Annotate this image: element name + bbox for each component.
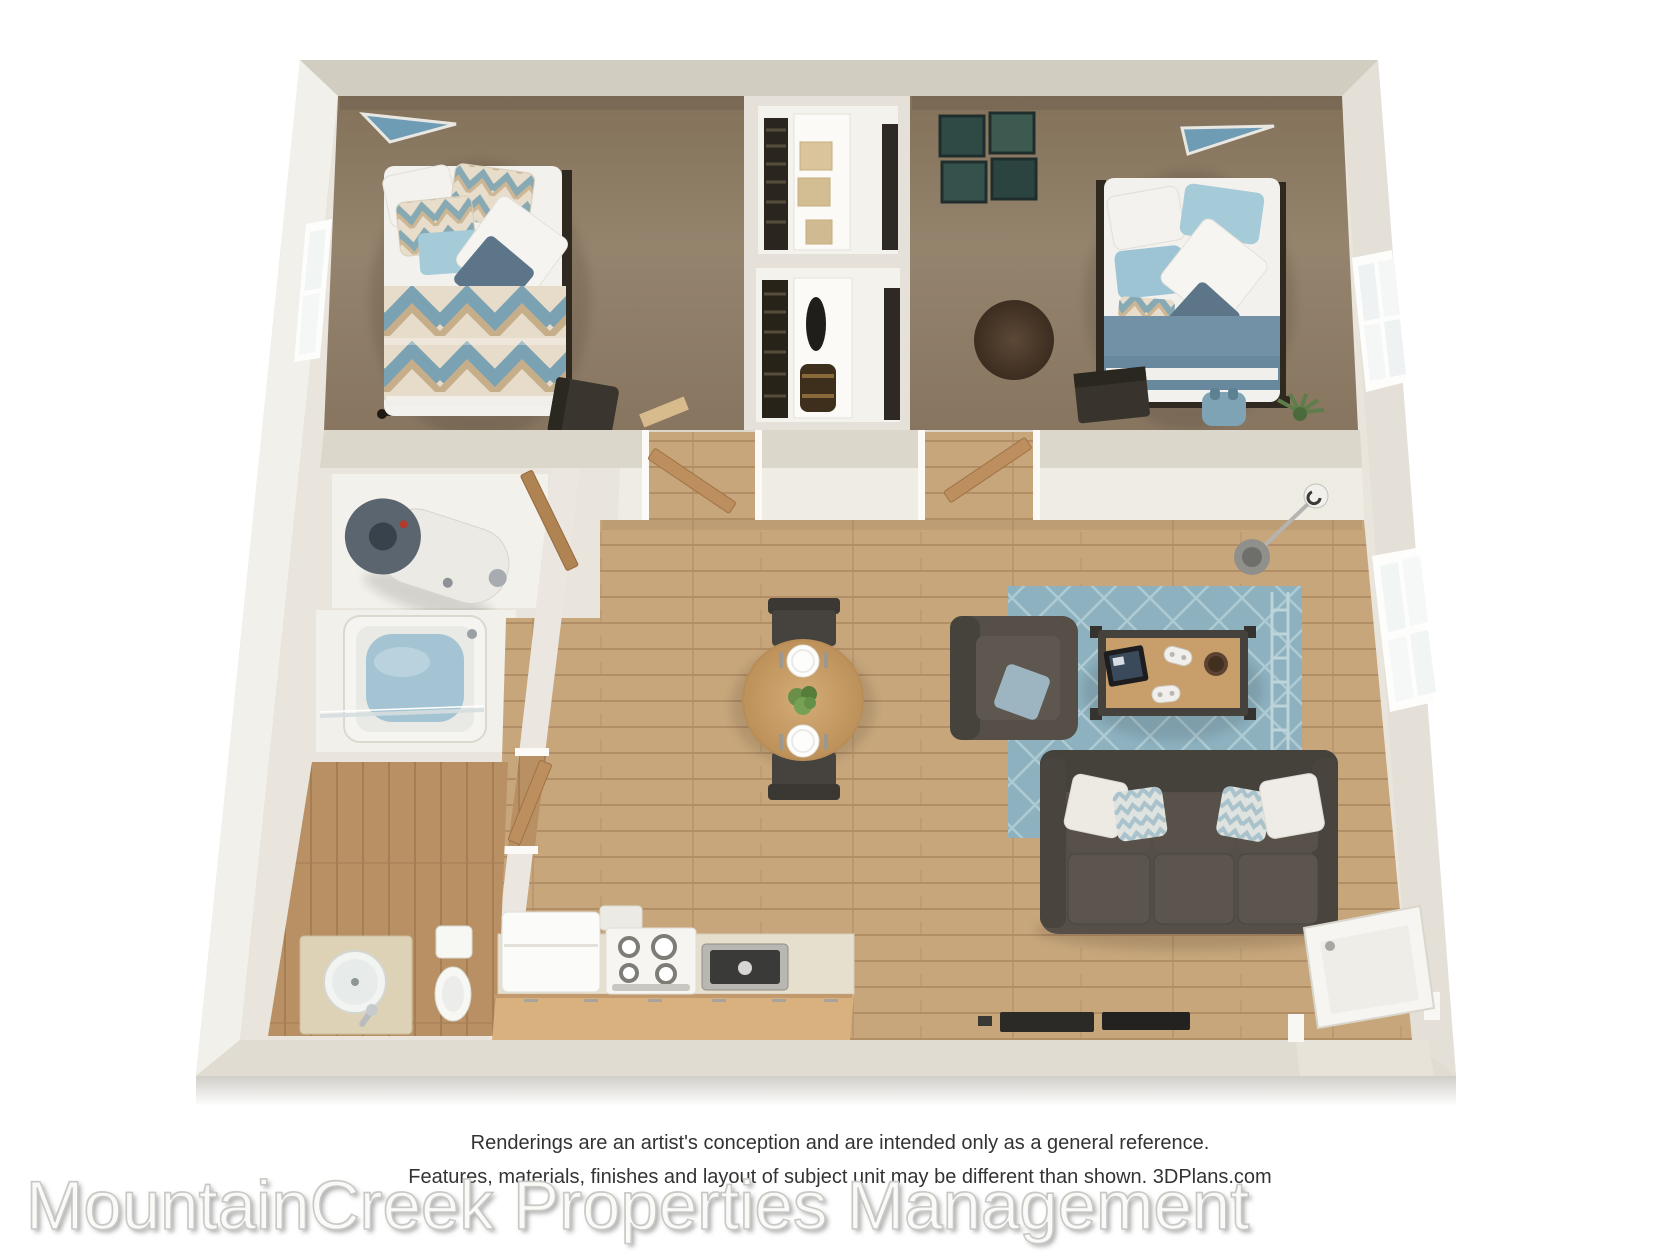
closet-bottom <box>756 268 900 422</box>
bedroom-right-doorway <box>918 430 1040 522</box>
armchair <box>950 616 1078 740</box>
hall-closets <box>744 96 910 430</box>
bedroom-left-doorway <box>642 430 762 522</box>
bedroom-left <box>294 96 744 443</box>
door-handle <box>1325 941 1335 951</box>
coffee-table <box>1083 626 1263 740</box>
vanity <box>300 936 412 1034</box>
bathtub-room <box>316 610 516 752</box>
tub-faucet <box>467 629 477 639</box>
watermark: MountainCreek Properties Management <box>26 1166 1249 1245</box>
tablet <box>1103 645 1149 687</box>
stove <box>606 928 696 994</box>
floor-shadow <box>196 1076 1456 1106</box>
closet-bag <box>800 364 836 412</box>
bedroom-right <box>910 96 1406 430</box>
kitchen-cabinets <box>492 994 854 1040</box>
bedroom-right-desk-chair <box>1073 366 1150 423</box>
disclaimer-line-1: Renderings are an artist's conception an… <box>0 1126 1680 1160</box>
backpack <box>1202 388 1246 426</box>
kitchen-sink <box>702 944 788 990</box>
floorplan-3d-rendering <box>0 0 1680 1260</box>
refrigerator <box>502 912 600 992</box>
bathtub <box>344 616 486 742</box>
floor-pouf <box>974 300 1054 380</box>
wall-tv <box>978 1012 1190 1032</box>
floorplan-image: Renderings are an artist's conception an… <box>0 0 1680 1260</box>
sofa-pillow-white <box>1258 772 1325 839</box>
closet-top <box>758 106 898 254</box>
sofa <box>1035 750 1345 950</box>
sofa-pillow-pattern <box>1112 786 1168 842</box>
closet-top-hanging-clothes <box>764 118 788 250</box>
sink-faucet <box>738 961 752 975</box>
game-controller <box>1151 685 1181 704</box>
closet-vase <box>806 297 826 351</box>
dining-chair-top <box>768 598 840 646</box>
